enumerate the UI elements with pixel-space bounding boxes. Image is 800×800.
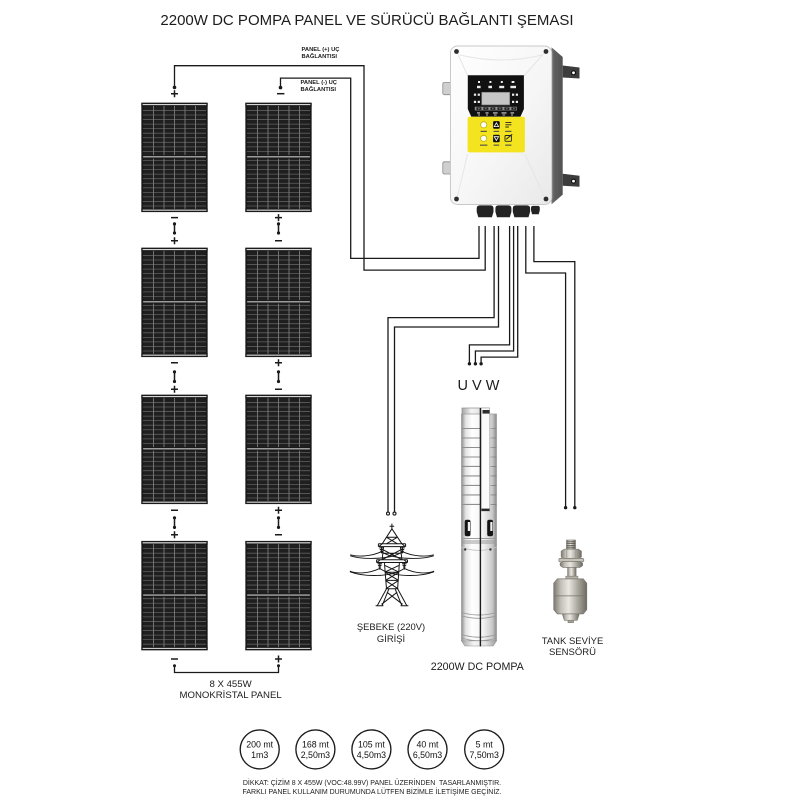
svg-text:5 mt: 5 mt (476, 740, 494, 750)
svg-text:105 mt: 105 mt (358, 740, 385, 750)
svg-text:1m3: 1m3 (251, 750, 268, 760)
svg-text:6,50m3: 6,50m3 (413, 750, 442, 760)
svg-text:40 mt: 40 mt (416, 740, 439, 750)
svg-text:2,50m3: 2,50m3 (301, 750, 330, 760)
svg-text:4,50m3: 4,50m3 (357, 750, 386, 760)
svg-text:168 mt: 168 mt (302, 740, 329, 750)
svg-text:200 mt: 200 mt (246, 740, 273, 750)
svg-text:7,50m3: 7,50m3 (470, 750, 499, 760)
